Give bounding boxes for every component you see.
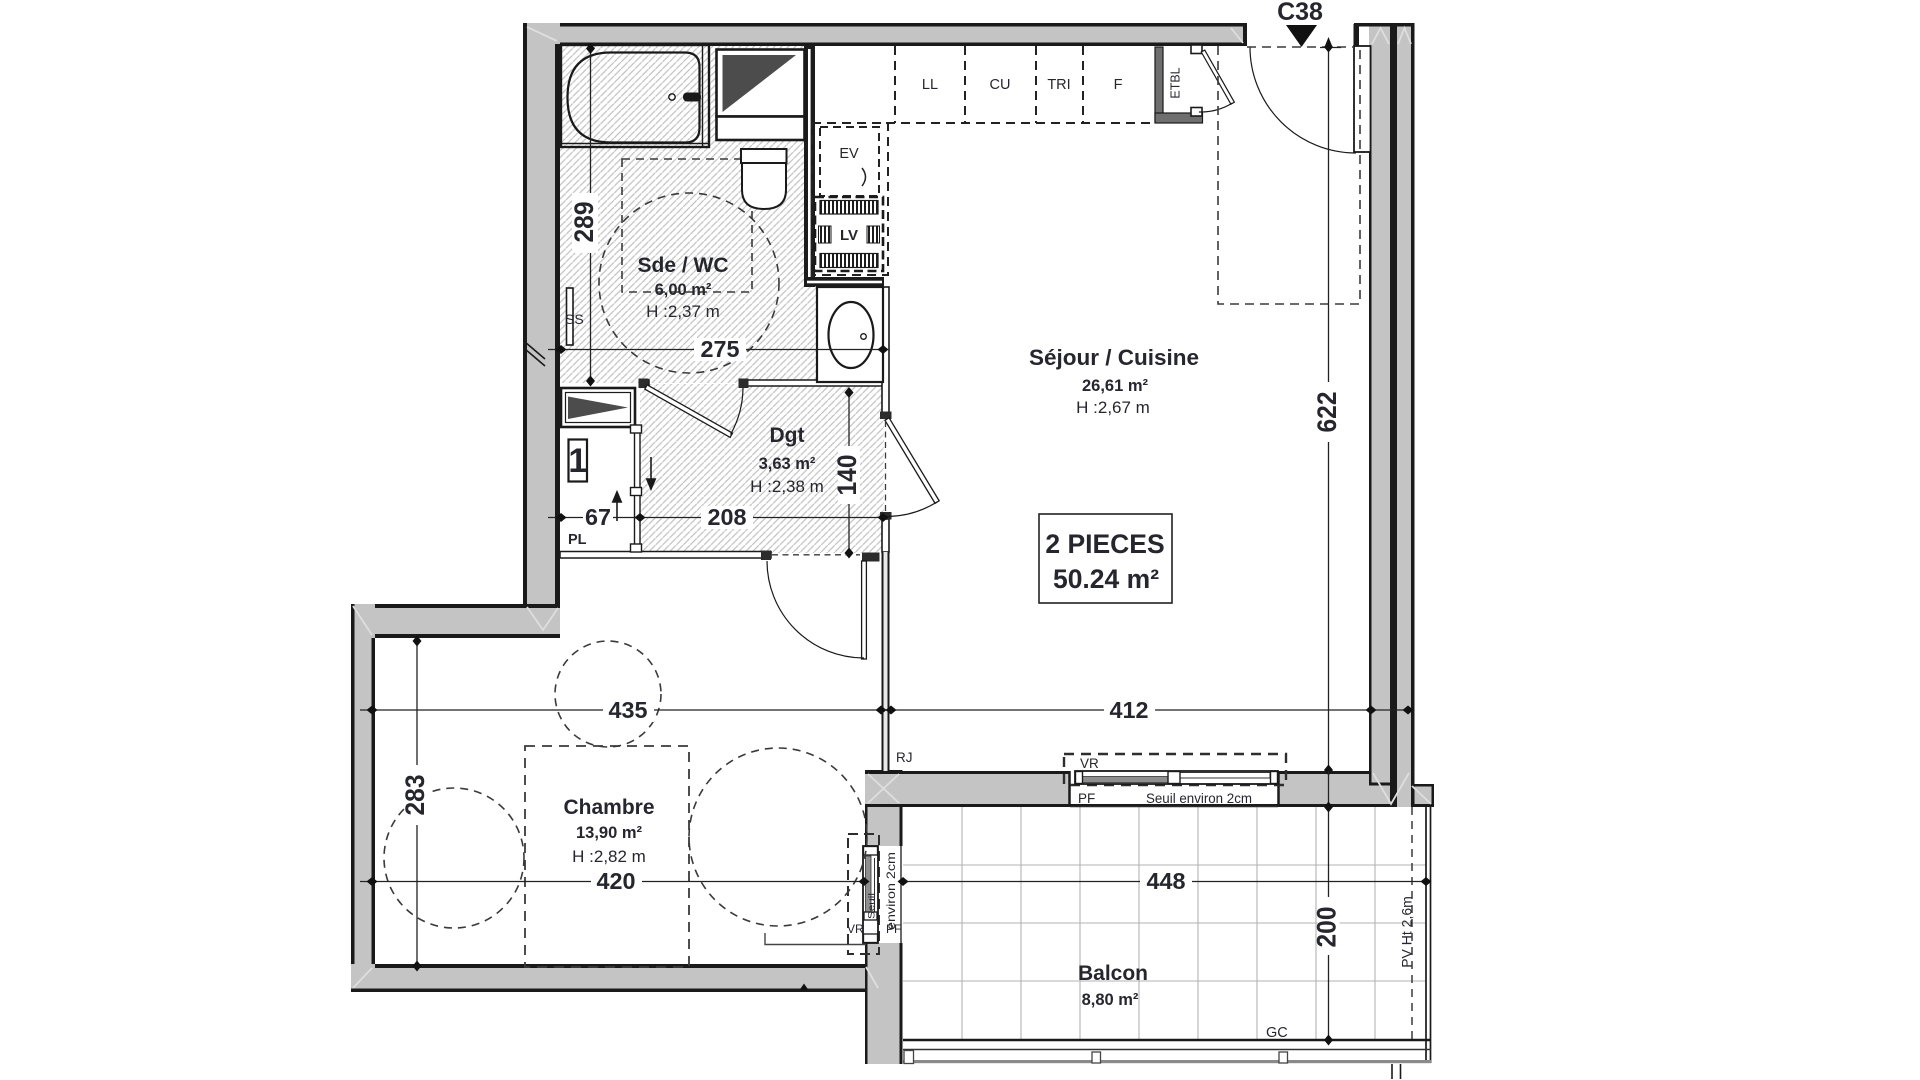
svg-text:VR: VR xyxy=(1080,756,1099,771)
svg-text:Séjour / Cuisine: Séjour / Cuisine xyxy=(1029,345,1199,370)
svg-text:200: 200 xyxy=(1312,907,1342,948)
svg-text:EV: EV xyxy=(839,146,859,162)
svg-text:environ 2cm: environ 2cm xyxy=(884,852,898,930)
svg-text:ETBL: ETBL xyxy=(1168,67,1182,98)
svg-text:RJ: RJ xyxy=(896,750,913,765)
svg-text:420: 420 xyxy=(597,868,636,894)
svg-text:H :2,67 m: H :2,67 m xyxy=(1076,398,1150,417)
svg-text:13,90 m²: 13,90 m² xyxy=(576,824,643,842)
svg-text:50.24 m²: 50.24 m² xyxy=(1053,564,1159,594)
svg-text:289: 289 xyxy=(569,202,599,243)
svg-text:3,63 m²: 3,63 m² xyxy=(759,455,816,473)
svg-text:Sde / WC: Sde / WC xyxy=(637,254,728,277)
svg-text:CU: CU xyxy=(990,77,1011,93)
svg-text:622: 622 xyxy=(1312,392,1342,433)
svg-text:TRI: TRI xyxy=(1047,77,1070,93)
svg-text:435: 435 xyxy=(609,697,648,723)
svg-text:GC: GC xyxy=(1266,1025,1288,1041)
svg-text:26,61 m²: 26,61 m² xyxy=(1082,377,1149,395)
svg-text:412: 412 xyxy=(1110,697,1149,723)
svg-text:H :2,82 m: H :2,82 m xyxy=(572,847,646,866)
svg-text:208: 208 xyxy=(708,504,747,530)
svg-text:H :2,38 m: H :2,38 m xyxy=(750,477,824,496)
svg-text:PL: PL xyxy=(568,532,587,548)
svg-text:283: 283 xyxy=(400,775,430,816)
svg-text:1: 1 xyxy=(568,442,587,480)
svg-text:F: F xyxy=(1114,77,1123,93)
svg-text:C38: C38 xyxy=(1277,0,1323,26)
svg-text:448: 448 xyxy=(1147,868,1186,894)
svg-text:SS: SS xyxy=(565,311,584,327)
svg-text:VR: VR xyxy=(847,922,864,936)
svg-text:275: 275 xyxy=(701,336,740,362)
svg-text:H :2,37 m: H :2,37 m xyxy=(646,302,720,321)
svg-text:140: 140 xyxy=(832,455,862,496)
svg-text:PF: PF xyxy=(1078,791,1095,806)
svg-text:Dgt: Dgt xyxy=(770,424,805,447)
svg-text:Seuil environ 2cm: Seuil environ 2cm xyxy=(1146,791,1252,806)
svg-text:Chambre: Chambre xyxy=(563,796,654,819)
svg-text:67: 67 xyxy=(585,504,611,530)
svg-text:Seuil: Seuil xyxy=(867,893,878,919)
svg-text:Balcon: Balcon xyxy=(1078,962,1148,985)
svg-text:2 PIECES: 2 PIECES xyxy=(1045,529,1164,559)
svg-text:PV Ht 2,6m: PV Ht 2,6m xyxy=(1399,896,1415,968)
svg-text:LV: LV xyxy=(840,227,858,244)
svg-text:6,00 m²: 6,00 m² xyxy=(655,281,712,299)
svg-text:8,80 m²: 8,80 m² xyxy=(1082,991,1139,1009)
svg-text:LL: LL xyxy=(922,77,938,93)
